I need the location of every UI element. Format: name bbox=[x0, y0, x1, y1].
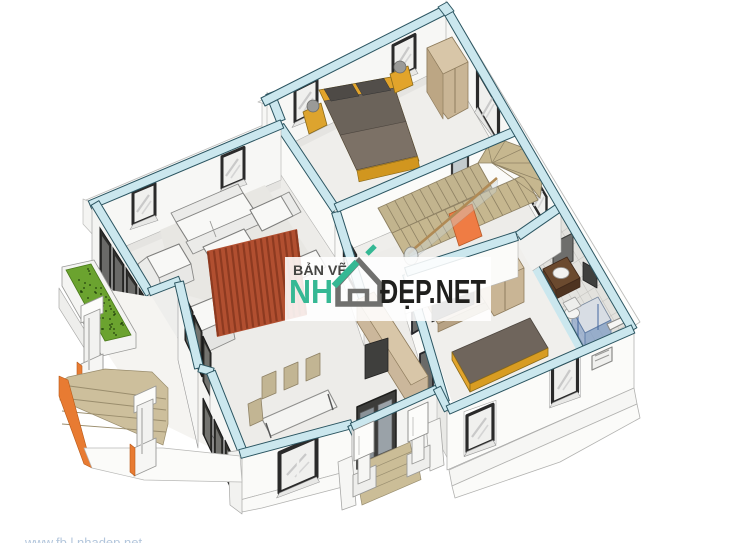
svg-text:ĐẸP.NET: ĐẸP.NET bbox=[380, 273, 486, 310]
svg-text:www.fb.l.nhadep.net: www.fb.l.nhadep.net bbox=[24, 535, 142, 543]
svg-text:NH: NH bbox=[289, 273, 333, 310]
